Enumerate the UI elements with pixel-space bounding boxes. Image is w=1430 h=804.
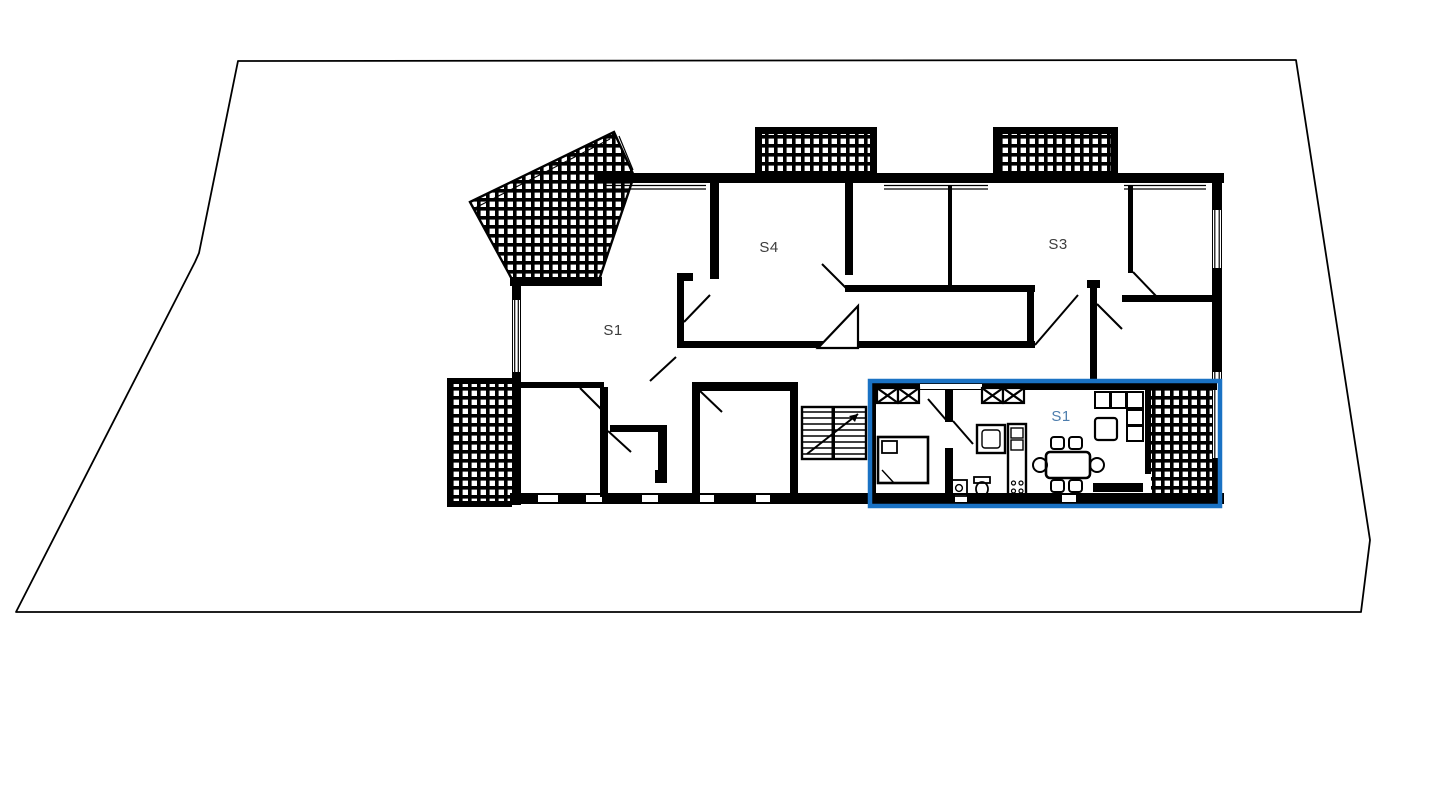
balcony-right — [1145, 390, 1213, 500]
room-label-s1: S1 — [603, 322, 622, 339]
floorplan-canvas: S1 S4 S3 S1 — [0, 0, 1430, 804]
building-outline: S1 S4 S3 — [447, 127, 1224, 507]
bed — [878, 437, 928, 483]
shower — [977, 425, 1005, 453]
terrace-top-left — [470, 132, 634, 286]
unit-furniture — [878, 392, 1143, 497]
kitchen-counter — [1008, 424, 1026, 497]
balcony-top-2 — [993, 127, 1118, 173]
highlighted-unit-label: S1 — [1051, 408, 1070, 425]
sofa — [1095, 392, 1143, 441]
room-label-s3: S3 — [1048, 236, 1067, 253]
plot-boundary — [16, 60, 1370, 612]
balcony-top-1 — [755, 127, 877, 173]
floorplan-svg: S1 S4 S3 S1 — [0, 0, 1430, 804]
unit-entry-gap — [920, 384, 982, 389]
balcony-left — [447, 378, 512, 507]
staircase — [802, 407, 866, 459]
rug — [1093, 483, 1143, 492]
room-label-s4: S4 — [759, 239, 778, 256]
